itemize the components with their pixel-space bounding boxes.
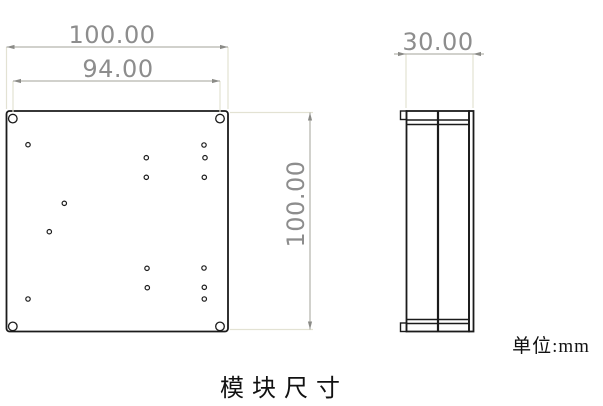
dimension-hole-spacing: 94.00	[13, 55, 220, 112]
side-view-front-plate-edge	[469, 111, 474, 332]
small-mounting-hole	[202, 143, 206, 147]
drawing-sheet: 100.00 94.00 100.00 30.00	[0, 0, 603, 406]
small-mounting-hole	[62, 201, 66, 205]
units-note: 单位:mm	[512, 335, 590, 357]
dimension-side-depth: 30.00	[394, 28, 484, 108]
small-mounting-hole	[26, 143, 30, 147]
small-mounting-hole	[47, 230, 51, 234]
cad-drawing-canvas: 100.00 94.00 100.00 30.00	[0, 0, 603, 406]
dim-arrow	[13, 79, 21, 83]
drawing-caption: 模块尺寸	[220, 375, 348, 402]
dim-arrow	[308, 113, 312, 121]
corner-holes	[9, 114, 225, 330]
dim-arrow	[212, 79, 220, 83]
small-mounting-hole	[202, 297, 206, 301]
small-mounting-hole	[202, 266, 206, 270]
dim-arrow	[7, 45, 15, 49]
small-mounting-hole	[145, 286, 149, 290]
small-mounting-hole	[202, 175, 206, 179]
dim-arrow	[220, 45, 228, 49]
small-mounting-hole	[144, 156, 148, 160]
small-holes	[26, 143, 207, 302]
dimension-value: 30.00	[402, 28, 473, 56]
dimension-value: 100.00	[282, 161, 310, 248]
corner-mounting-hole	[9, 114, 18, 123]
front-view	[7, 111, 229, 332]
small-mounting-hole	[202, 285, 206, 289]
dimension-value: 94.00	[82, 55, 153, 83]
small-mounting-hole	[144, 175, 148, 179]
corner-mounting-hole	[216, 114, 225, 123]
dim-arrow	[473, 52, 481, 56]
corner-mounting-hole	[9, 322, 18, 331]
side-view	[401, 111, 474, 332]
dimension-front-height: 100.00	[230, 113, 313, 330]
small-mounting-hole	[145, 266, 149, 270]
plate-outline	[7, 111, 229, 332]
dim-arrow	[308, 322, 312, 330]
dimension-value: 100.00	[69, 21, 156, 49]
small-mounting-hole	[203, 156, 207, 160]
corner-mounting-hole	[216, 322, 225, 331]
small-mounting-hole	[26, 297, 30, 301]
